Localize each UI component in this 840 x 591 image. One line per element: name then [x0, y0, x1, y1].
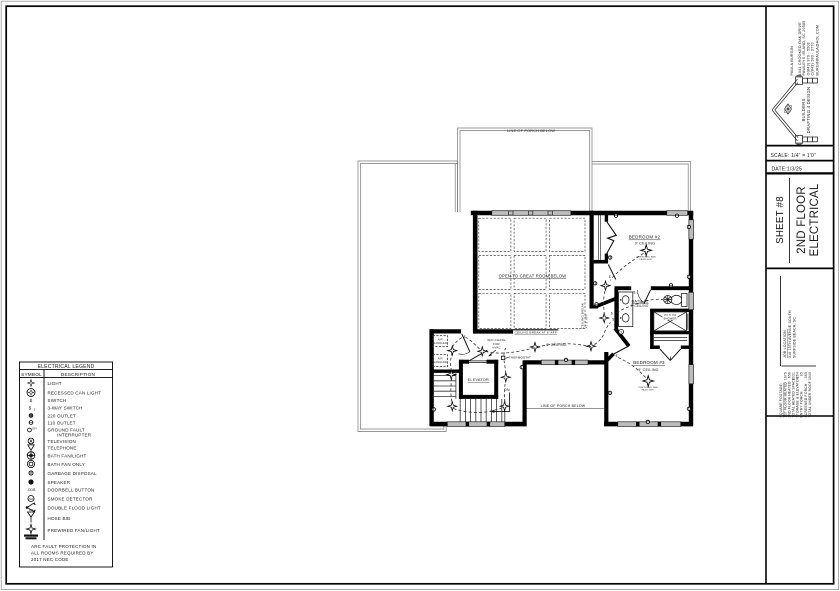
- svg-text:DESCRIPTION: DESCRIPTION: [61, 372, 95, 377]
- svg-text:JOB LOCATION:: JOB LOCATION:: [783, 329, 787, 358]
- svg-text:BEDROOM #3: BEDROOM #3: [633, 360, 665, 365]
- svg-text:HVAC: HVAC: [492, 345, 501, 349]
- svg-text:$: $: [609, 275, 611, 279]
- svg-text:HB: HB: [29, 508, 33, 512]
- svg-text:PREWIRED FAN/LIGHT: PREWIRED FAN/LIGHT: [48, 528, 100, 533]
- svg-text:PREWIRED FAN: PREWIRED FAN: [637, 255, 656, 258]
- svg-text:110 OUTLET: 110 OUTLET: [48, 420, 76, 425]
- svg-text:318 15TH AVENUE SOUTH: 318 15TH AVENUE SOUTH: [788, 310, 792, 358]
- svg-text:DN: DN: [504, 388, 510, 392]
- svg-text:HANDLER: HANDLER: [433, 341, 447, 345]
- svg-text:$: $: [464, 335, 466, 339]
- svg-text:FAN/LIGHT: FAN/LIGHT: [640, 258, 654, 261]
- svg-text:3'0 X 3'0: 3'0 X 3'0: [664, 313, 676, 317]
- svg-text:BATH FAN/LIGHT: BATH FAN/LIGHT: [48, 453, 87, 458]
- svg-text:ELECTRICAL LEGEND: ELECTRICAL LEGEND: [38, 364, 95, 370]
- svg-text:$: $: [634, 290, 636, 294]
- svg-text:PAULA BURGIN: PAULA BURGIN: [790, 46, 794, 76]
- svg-text:PAWLEYS ISLAND, SC 29585: PAWLEYS ISLAND, SC 29585: [802, 20, 806, 75]
- svg-text:ARC FAULT PROTECTION IN: ARC FAULT PROTECTION IN: [31, 544, 96, 549]
- svg-text:ELECTRICAL: ELECTRICAL: [809, 183, 821, 256]
- svg-text:-CDB: -CDB: [27, 488, 36, 492]
- svg-text:CEILING BREAK AT 8' AFF: CEILING BREAK AT 8' AFF: [515, 330, 557, 334]
- svg-text:HOSE BIB: HOSE BIB: [48, 516, 71, 521]
- svg-text:SMOKE DETECTOR: SMOKE DETECTOR: [48, 496, 94, 501]
- svg-text:BURGINPAULA@AOL.COM: BURGINPAULA@AOL.COM: [816, 25, 820, 76]
- svg-text:ELEVATOR: ELEVATOR: [468, 378, 489, 382]
- svg-text:PREWIRED FAN: PREWIRED FAN: [639, 386, 658, 389]
- svg-text:RECESSED CAN LIGHT: RECESSED CAN LIGHT: [48, 390, 102, 395]
- svg-text:220 OUTLET: 220 OUTLET: [48, 413, 77, 418]
- svg-text:DOUBLE FLOOD LIGHT: DOUBLE FLOOD LIGHT: [48, 505, 101, 510]
- svg-text:9' CEILING: 9' CEILING: [635, 241, 656, 245]
- svg-text:$: $: [612, 318, 614, 322]
- svg-text:OPEN TO GREAT ROOM BELOW: OPEN TO GREAT ROOM BELOW: [499, 274, 567, 279]
- svg-text:GARBAGE DISPOSAL: GARBAGE DISPOSAL: [48, 471, 98, 476]
- svg-text:3040: 3040: [808, 372, 812, 380]
- svg-text:DOORBELL BUTTON: DOORBELL BUTTON: [48, 487, 95, 492]
- svg-text:INTERRUPTER: INTERRUPTER: [57, 432, 92, 437]
- svg-text:TOTAL UNDER ROOF: TOTAL UNDER ROOF: [808, 381, 812, 417]
- svg-text:AT 9' AFF: AT 9' AFF: [584, 314, 588, 329]
- svg-text:LINE OF PORCH BELOW: LINE OF PORCH BELOW: [507, 129, 555, 133]
- svg-text:BEDROOM #2: BEDROOM #2: [629, 235, 661, 240]
- svg-text:C(843) 283 - 3770: C(843) 283 - 3770: [810, 42, 814, 75]
- svg-text:9' CEILING: 9' CEILING: [630, 304, 648, 308]
- svg-text:THERMOSTAT: THERMOSTAT: [509, 355, 531, 359]
- svg-text:3-WAY SWITCH: 3-WAY SWITCH: [48, 405, 83, 410]
- svg-text:FAN/LIGHT: FAN/LIGHT: [642, 389, 656, 392]
- svg-text:TELEPHONE: TELEPHONE: [48, 445, 77, 450]
- svg-text:DRAFTING 4 DESIGN: DRAFTING 4 DESIGN: [806, 87, 811, 134]
- svg-text:LIGHT: LIGHT: [48, 381, 62, 386]
- svg-text:9' CEILING: 9' CEILING: [546, 343, 567, 347]
- svg-text:9' CEILING: 9' CEILING: [638, 368, 659, 372]
- svg-text:2017 NEC CODE: 2017 NEC CODE: [31, 557, 69, 562]
- svg-text:DATE:1/3/25: DATE:1/3/25: [772, 166, 802, 172]
- svg-text:SHEET #8: SHEET #8: [775, 196, 786, 244]
- svg-text:SCALE: 1/4" = 1'0": SCALE: 1/4" = 1'0": [771, 153, 817, 159]
- svg-text:GFI: GFI: [32, 427, 37, 431]
- svg-text:HANDLER: HANDLER: [433, 360, 447, 364]
- svg-text:$: $: [614, 323, 616, 327]
- svg-text:$: $: [611, 312, 613, 316]
- svg-text:TELEVISION: TELEVISION: [48, 439, 77, 444]
- svg-text:BATH FAN ONLY: BATH FAN ONLY: [48, 462, 85, 467]
- svg-text:ALL ROOMS REQUIRED BY: ALL ROOMS REQUIRED BY: [31, 550, 94, 555]
- svg-text:SYMBOL: SYMBOL: [21, 372, 42, 377]
- svg-text:SWITCH: SWITCH: [48, 398, 67, 403]
- svg-text:$: $: [616, 354, 618, 358]
- svg-text:SPEAKER: SPEAKER: [48, 480, 71, 485]
- svg-text:SURFSIDE BEACH, SC: SURFSIDE BEACH, SC: [793, 317, 797, 358]
- svg-text:2ND FLOOR: 2ND FLOOR: [796, 186, 808, 254]
- svg-text:BATH #2: BATH #2: [632, 298, 649, 303]
- svg-text:SHOWER: SHOWER: [663, 317, 676, 321]
- svg-text:LINE OF PORCH BELOW: LINE OF PORCH BELOW: [541, 404, 586, 408]
